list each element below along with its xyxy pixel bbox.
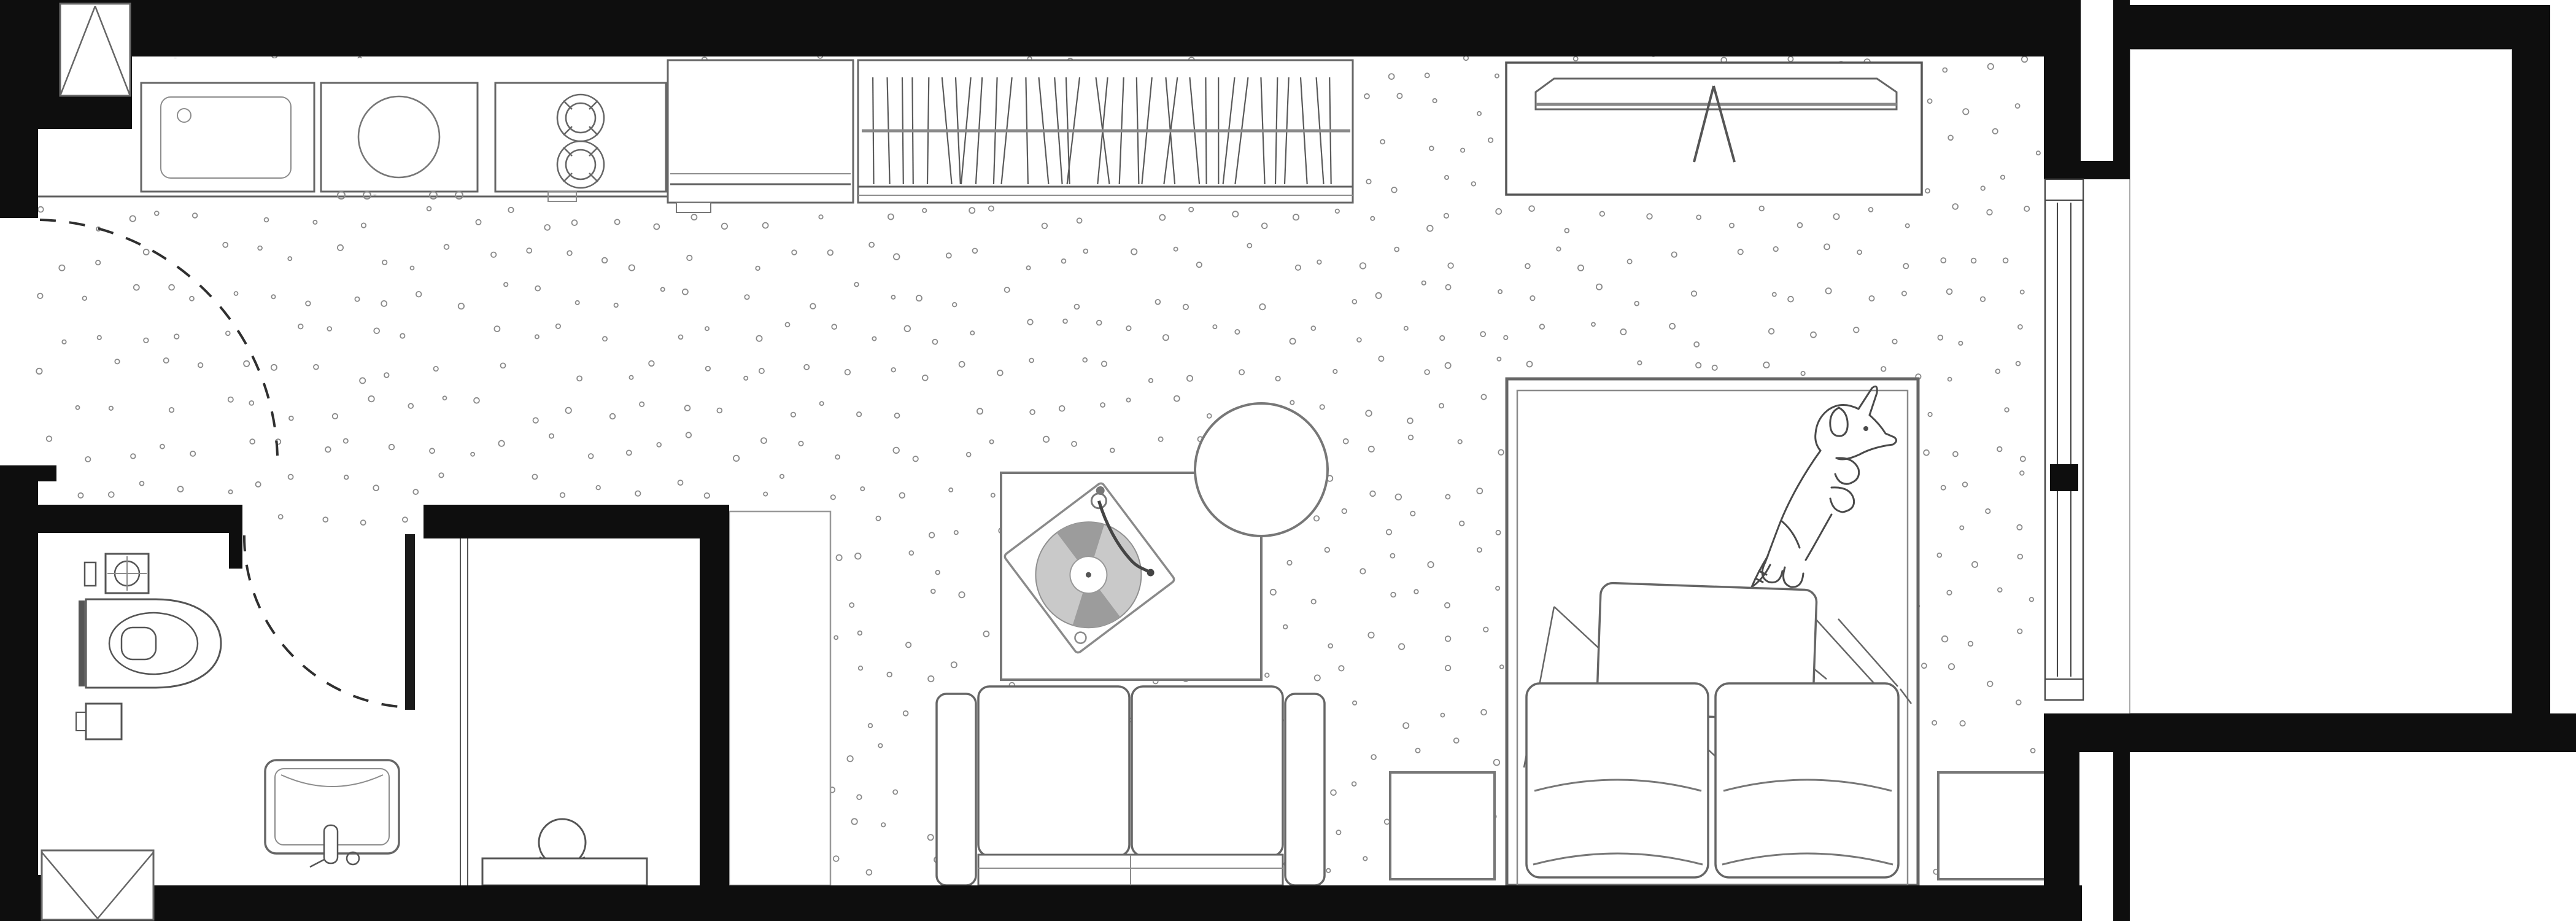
window-sill-bottom <box>2045 679 2083 700</box>
entry-threshold-stub <box>0 465 56 481</box>
toilet-wall-mount <box>79 600 85 686</box>
wall-left-upper <box>0 0 38 218</box>
round-pouf <box>1195 403 1328 536</box>
kitchen <box>141 60 853 212</box>
wall-top <box>0 0 2081 56</box>
flush-plate <box>85 562 96 586</box>
bathroom-door-jamb <box>229 533 242 569</box>
balcony-window-unit <box>2045 179 2083 700</box>
window-sill-top <box>2045 179 2083 200</box>
dressing-room-wall-top <box>424 505 729 538</box>
tv-console <box>1506 63 1922 195</box>
bathroom-wall <box>38 505 242 533</box>
balcony-wall-top <box>2113 5 2550 49</box>
pillow-left <box>1526 683 1708 877</box>
fridge-handle <box>676 203 711 212</box>
cooktop-unit <box>495 83 666 192</box>
nightstand-left <box>1390 772 1495 879</box>
balcony-wall-bottom <box>2044 713 2576 752</box>
nightstand-right <box>1938 772 2045 879</box>
sofa-cushion <box>978 686 1129 856</box>
sofa-cushion <box>1132 686 1283 856</box>
bed <box>1507 379 1918 885</box>
window-mullion <box>2050 464 2078 491</box>
wall-right-upper <box>2044 0 2081 179</box>
vanity-desk <box>482 858 647 885</box>
duct-shaft-top-left <box>60 4 130 96</box>
wall-bottom <box>0 885 2082 921</box>
pillow-right <box>1715 683 1898 877</box>
balcony-interior <box>2130 49 2512 713</box>
wardrobe <box>858 60 1353 203</box>
bathroom-shelf <box>86 704 122 739</box>
sofa-armrest <box>937 694 976 885</box>
dressing-room-wall-right <box>700 538 729 885</box>
floor-plan <box>0 0 2576 921</box>
balcony-wall-right <box>2512 5 2550 752</box>
wall-strip-lower-a <box>2044 752 2079 921</box>
niche-connector-wall <box>2044 161 2130 179</box>
duct-shaft-bottom-left <box>42 850 153 920</box>
wall-strip-lower-b <box>2113 752 2130 921</box>
bathroom-door-leaf <box>405 534 415 710</box>
wall-left-lower <box>0 465 38 921</box>
refrigerator-cabinet <box>668 60 853 203</box>
oven-unit <box>321 83 478 192</box>
sofa-armrest <box>1285 694 1325 885</box>
sink-faucet <box>324 825 338 863</box>
shelf-bracket <box>76 712 86 731</box>
tall-cabinet <box>729 511 830 885</box>
